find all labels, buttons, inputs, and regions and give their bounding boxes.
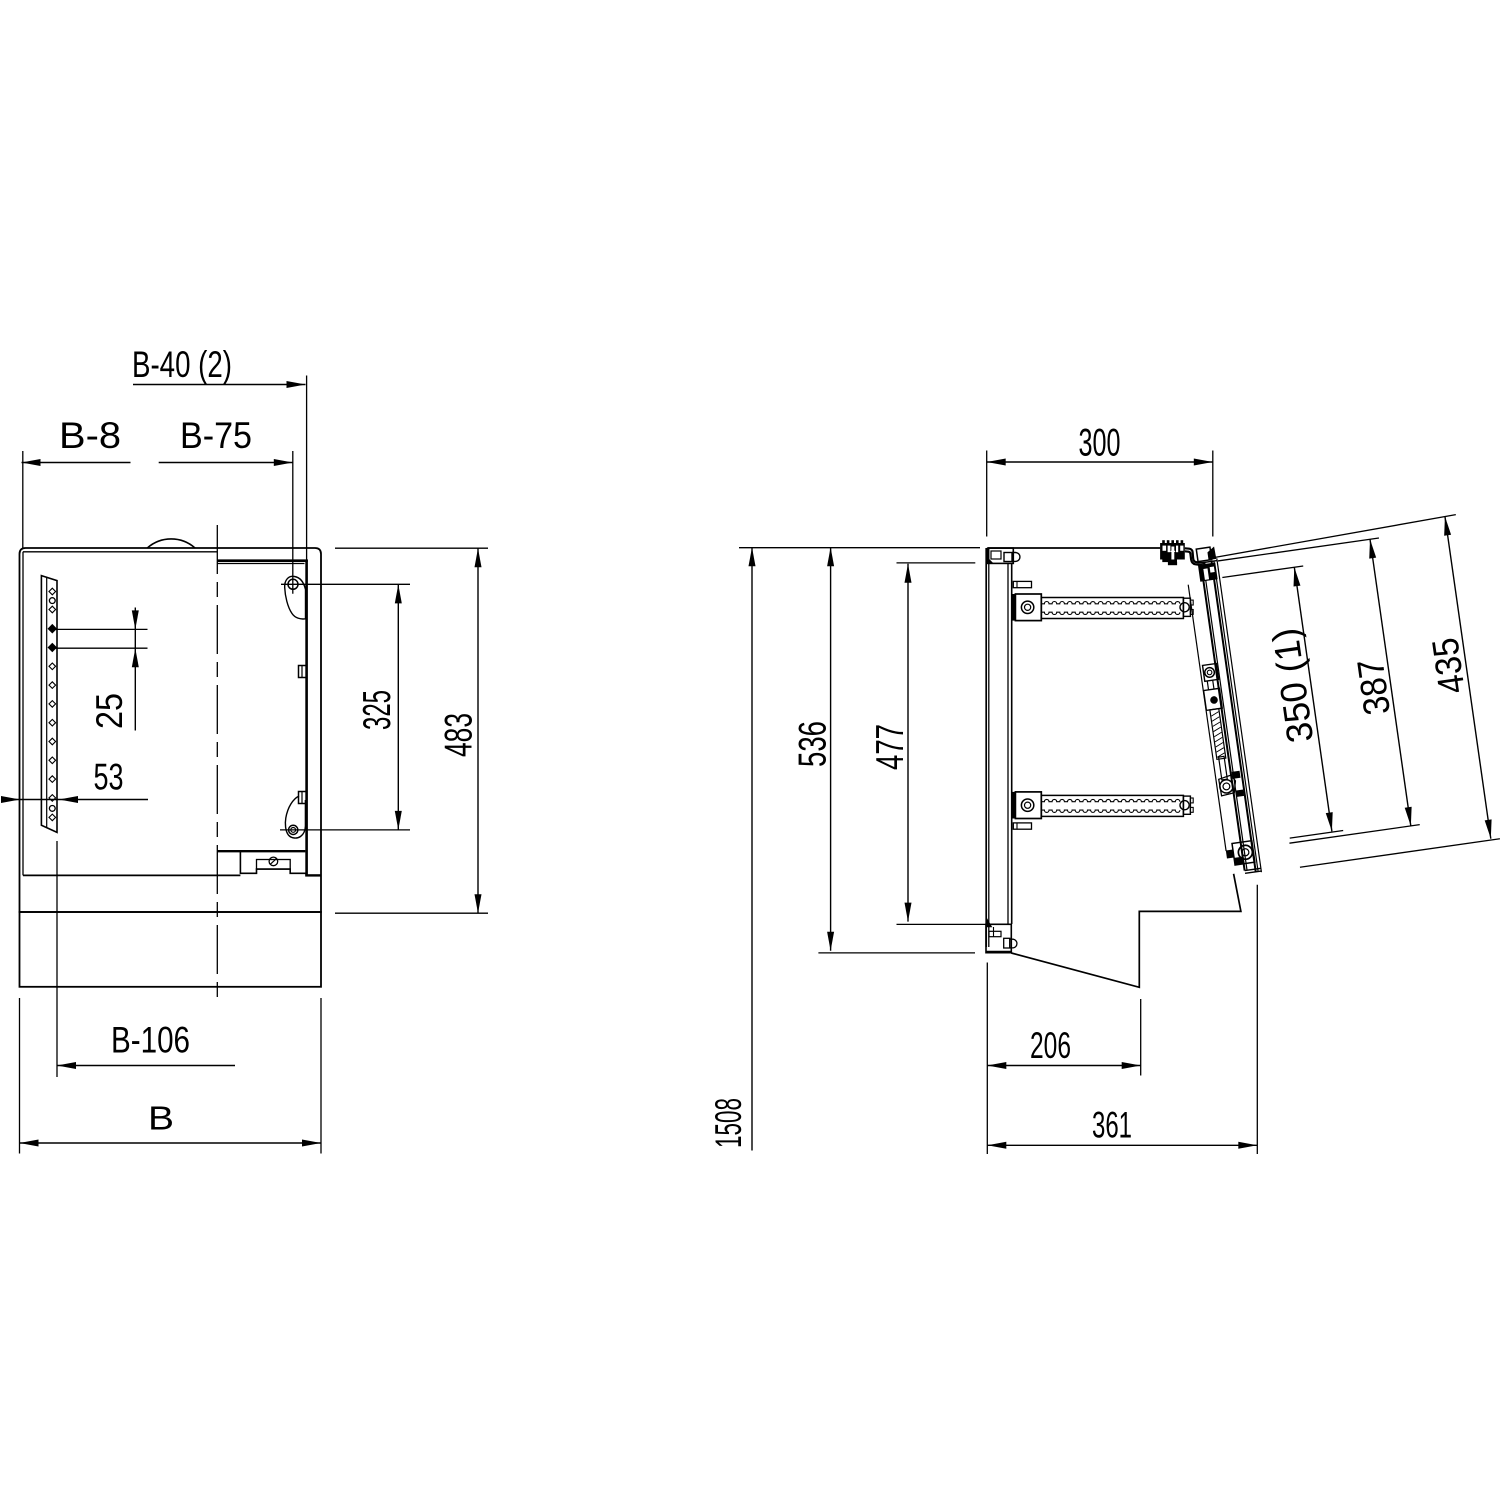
- svg-text:206: 206: [1030, 1025, 1071, 1066]
- svg-text:387: 387: [1350, 656, 1398, 717]
- svg-text:B: B: [148, 1100, 174, 1137]
- svg-text:483: 483: [438, 713, 481, 757]
- svg-text:435: 435: [1424, 635, 1472, 696]
- svg-text:B-106: B-106: [111, 1020, 190, 1061]
- svg-text:477: 477: [869, 724, 912, 770]
- svg-text:325: 325: [356, 690, 399, 730]
- svg-text:25: 25: [89, 693, 130, 729]
- svg-text:B-75: B-75: [180, 415, 252, 456]
- svg-text:B-8: B-8: [59, 415, 121, 456]
- svg-text:300: 300: [1079, 422, 1121, 465]
- svg-text:53: 53: [94, 757, 124, 798]
- svg-text:1508: 1508: [708, 1098, 749, 1148]
- svg-text:361: 361: [1092, 1105, 1132, 1146]
- svg-text:536: 536: [792, 721, 835, 767]
- svg-text:B-40 (2): B-40 (2): [132, 344, 232, 385]
